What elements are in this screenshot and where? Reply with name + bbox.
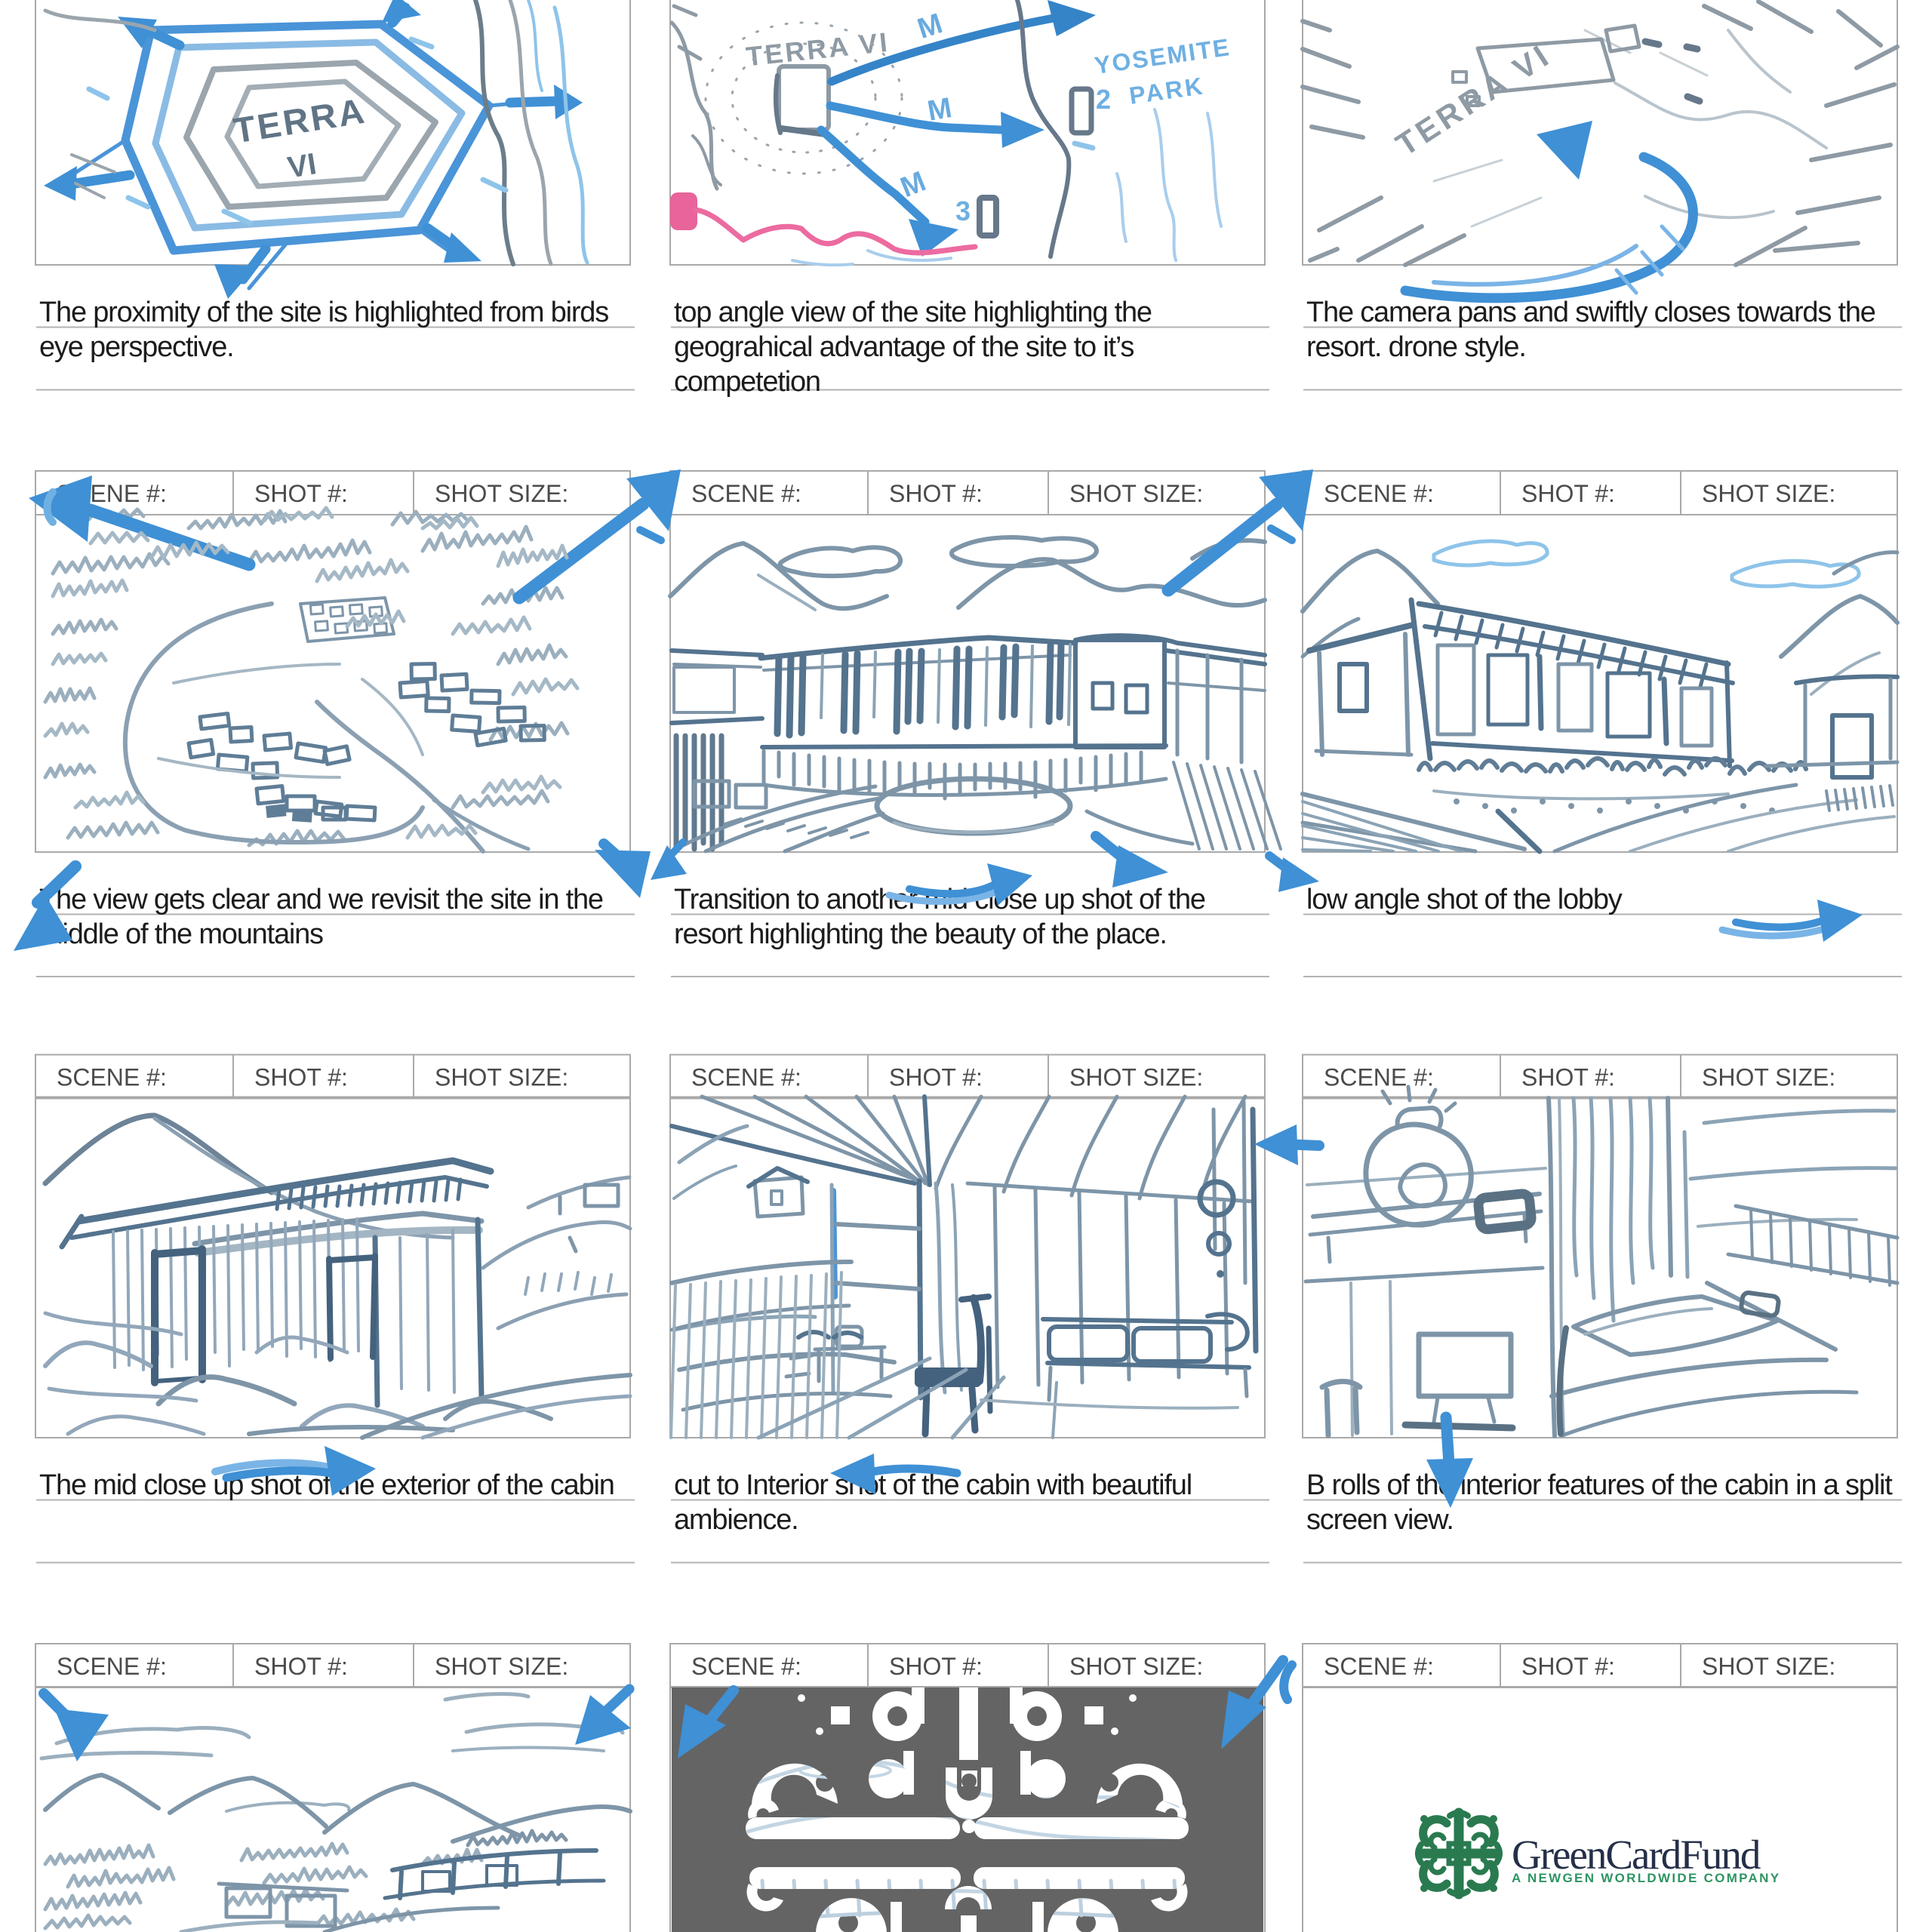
svg-text:2: 2	[1096, 84, 1111, 115]
svg-text:resort. drone style.: resort. drone style.	[1306, 331, 1526, 363]
svg-text:eye perspective.: eye perspective.	[39, 331, 234, 363]
svg-text:The proximity of the site is h: The proximity of the site is highlighted…	[39, 297, 608, 328]
svg-text:cut to Interior shot of the ca: cut to Interior shot of the cabin with b…	[674, 1469, 1192, 1501]
svg-text:top angle view of the site hig: top angle view of the site highlighting …	[674, 297, 1152, 328]
svg-text:low angle shot of the lobby: low angle shot of the lobby	[1306, 884, 1623, 915]
svg-text:B rolls of the interior featur: B rolls of the interior features of the …	[1306, 1469, 1893, 1501]
svg-text:competetion: competetion	[674, 366, 820, 398]
svg-text:resort highlighting the beauty: resort highlighting the beauty of the pl…	[674, 918, 1167, 950]
svg-text:screen view.: screen view.	[1306, 1504, 1454, 1536]
svg-text:A NEWGEN WORLDWIDE COMPANY: A NEWGEN WORLDWIDE COMPANY	[1512, 1871, 1780, 1885]
svg-text:The camera pans and swiftly cl: The camera pans and swiftly closes towar…	[1306, 297, 1875, 328]
svg-text:The view gets clear and we rev: The view gets clear and we revisit the s…	[39, 884, 603, 915]
svg-text:geograhical advantage of the s: geograhical advantage of the site to it’…	[674, 331, 1134, 363]
svg-text:middle of the mountains: middle of the mountains	[39, 918, 323, 950]
svg-text:3: 3	[955, 195, 971, 226]
svg-text:VI: VI	[285, 147, 318, 184]
svg-text:ambience.: ambience.	[674, 1504, 798, 1536]
